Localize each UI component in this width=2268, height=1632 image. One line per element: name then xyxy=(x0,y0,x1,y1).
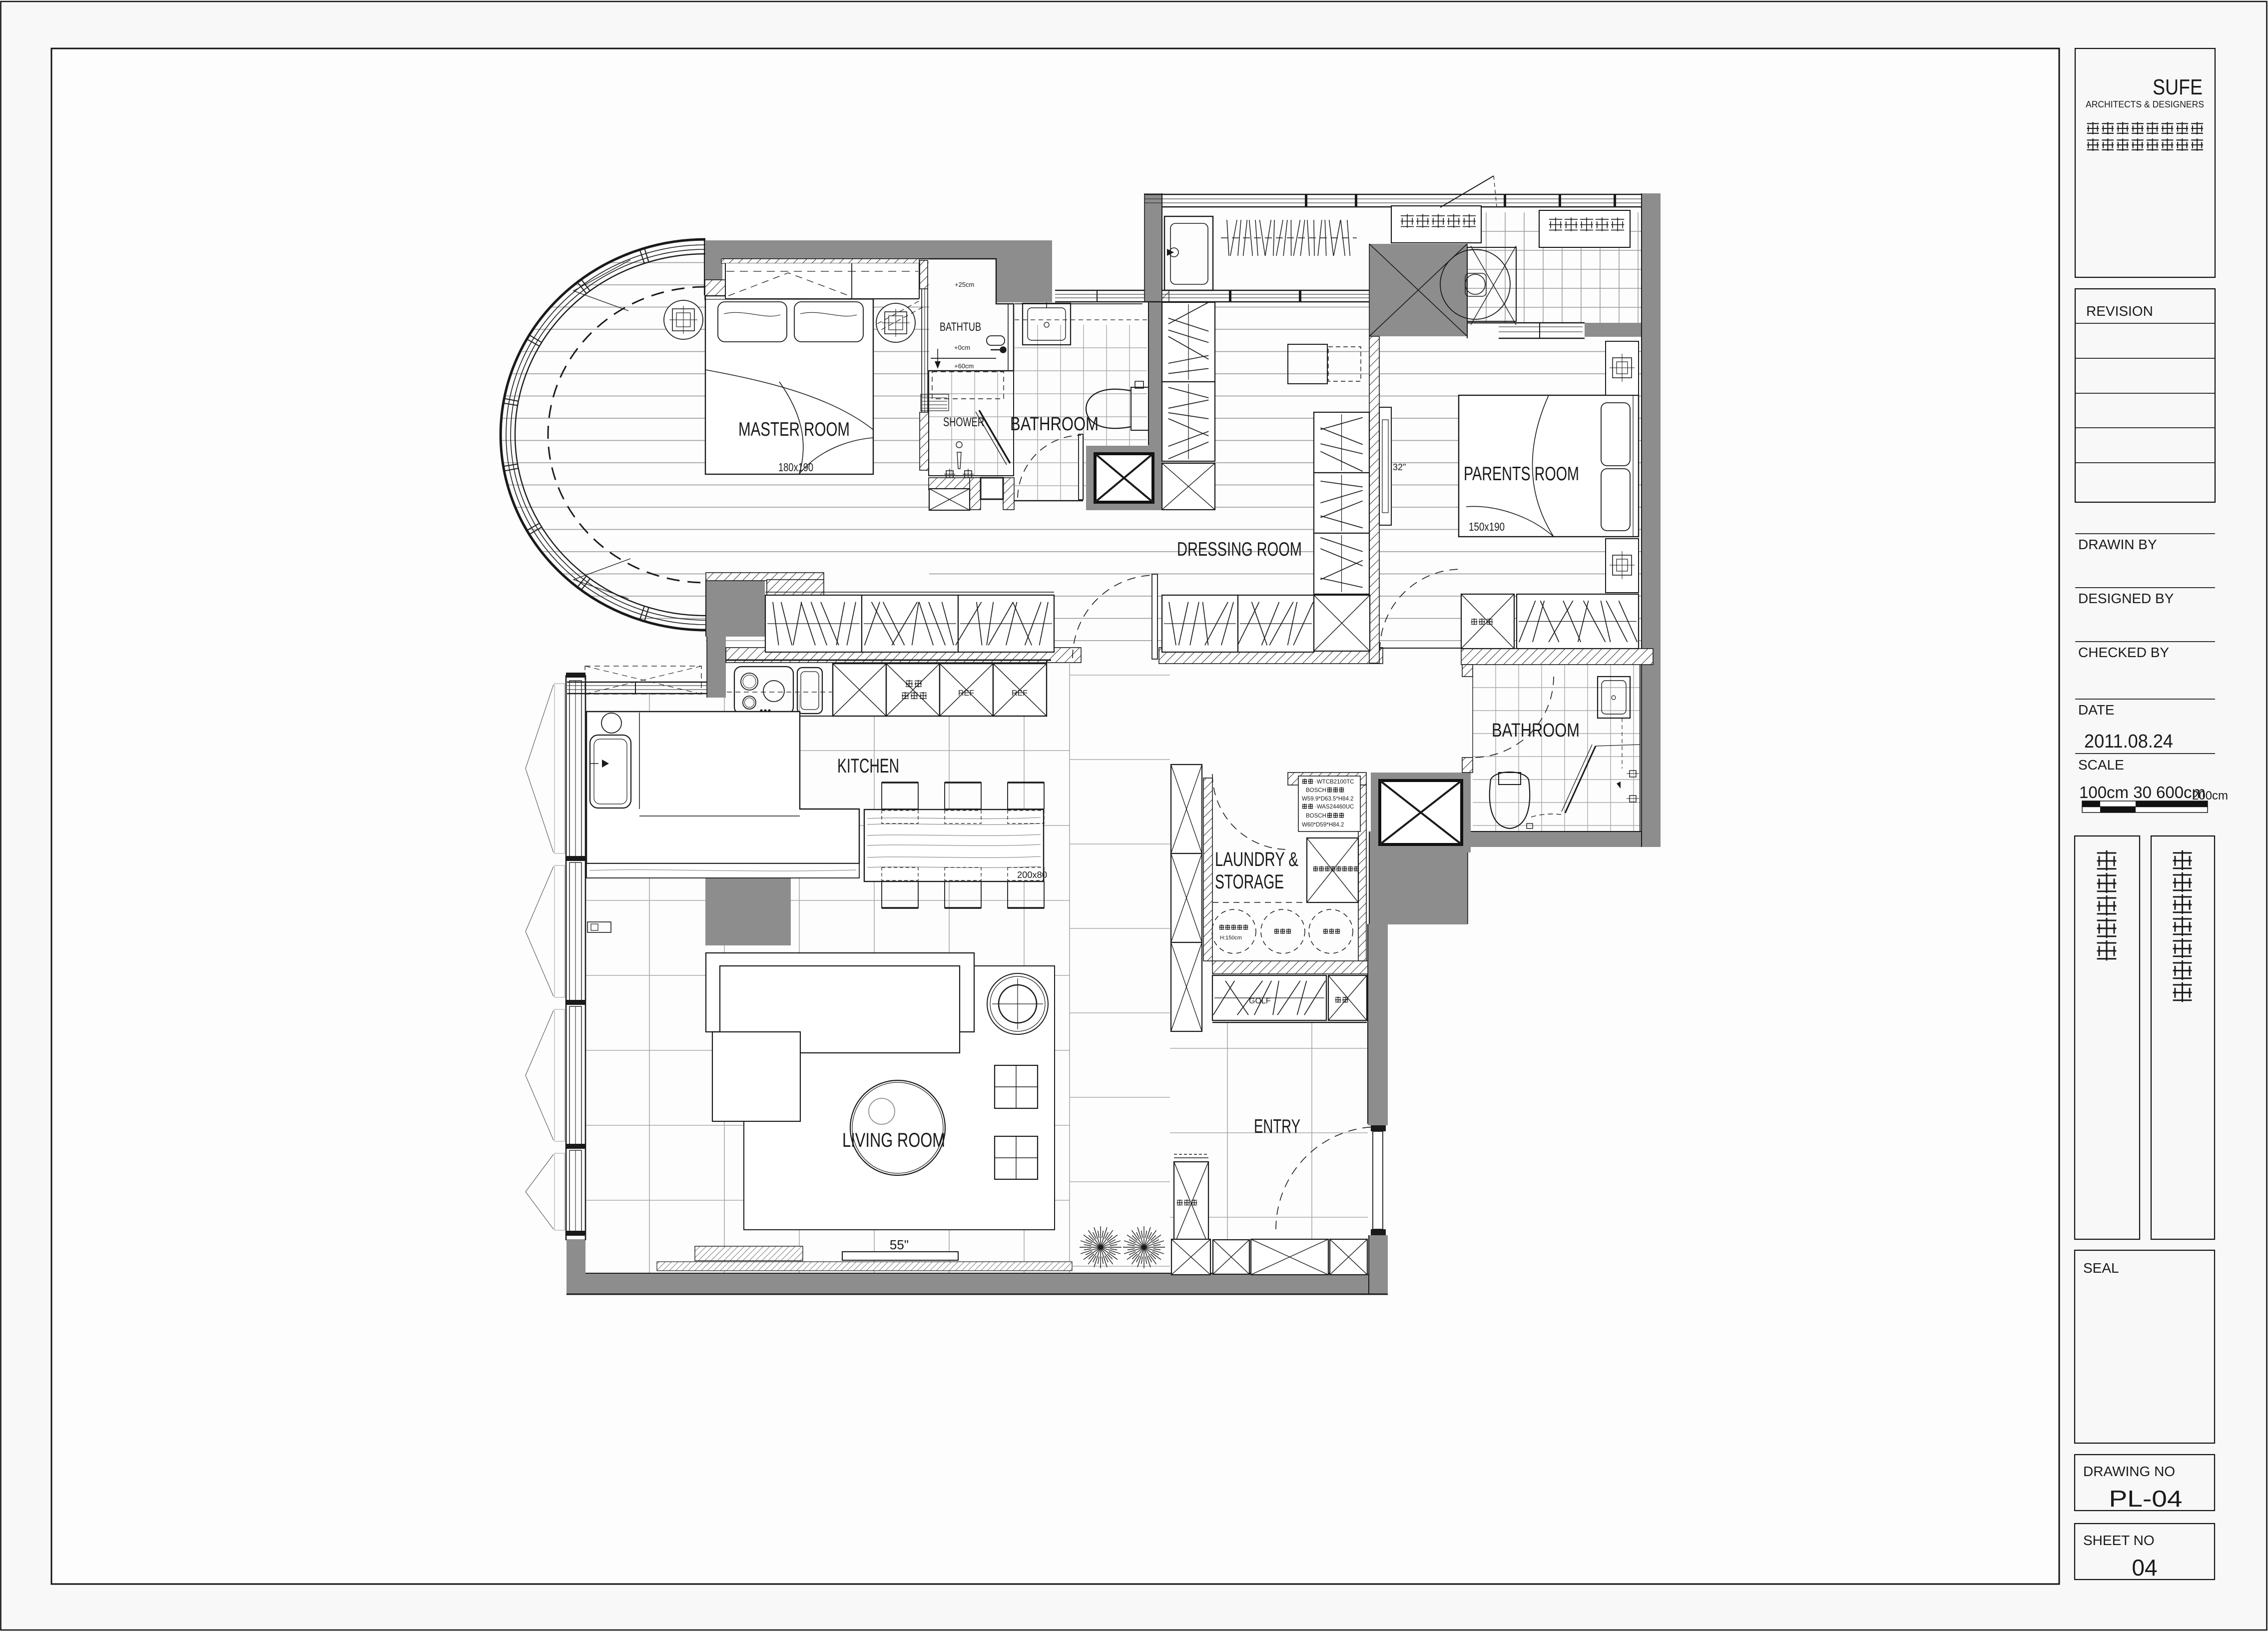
svg-text:PARENTS ROOM: PARENTS ROOM xyxy=(1464,463,1579,485)
svg-text:BATHTUB: BATHTUB xyxy=(940,320,981,334)
svg-text:100cm 30: 100cm 30 xyxy=(2079,783,2152,802)
svg-text:200x80: 200x80 xyxy=(1017,870,1047,880)
svg-text:·WTCB2100TC: ·WTCB2100TC xyxy=(1315,779,1354,785)
svg-text:DATE: DATE xyxy=(2078,702,2115,718)
svg-text:W59.9*D63.5*H84.2: W59.9*D63.5*H84.2 xyxy=(1302,796,1354,802)
svg-text:ENTRY: ENTRY xyxy=(1254,1116,1300,1137)
svg-text:SEAL: SEAL xyxy=(2083,1260,2119,1276)
svg-text:+25cm: +25cm xyxy=(955,281,974,288)
svg-text:REF: REF xyxy=(1012,689,1028,698)
svg-text:REF: REF xyxy=(958,689,974,698)
svg-text:55": 55" xyxy=(890,1237,909,1252)
svg-text:+0cm: +0cm xyxy=(954,344,970,351)
svg-text:SHEET NO: SHEET NO xyxy=(2083,1533,2155,1548)
svg-text:ARCHITECTS & DESIGNERS: ARCHITECTS & DESIGNERS xyxy=(2086,99,2204,109)
svg-text:200cm: 200cm xyxy=(2192,789,2228,803)
svg-text:W60*D59*H84.2: W60*D59*H84.2 xyxy=(1302,822,1344,828)
svg-text:+60cm: +60cm xyxy=(954,362,974,370)
svg-text:KITCHEN: KITCHEN xyxy=(837,755,899,777)
svg-text:DRESSING ROOM: DRESSING ROOM xyxy=(1177,539,1302,560)
svg-text:LAUNDRY &: LAUNDRY & xyxy=(1215,848,1298,870)
svg-text:SHOWER: SHOWER xyxy=(943,415,984,429)
svg-text:REVISION: REVISION xyxy=(2086,303,2153,319)
svg-text:SCALE: SCALE xyxy=(2078,757,2124,773)
svg-text:BOSCH: BOSCH xyxy=(1306,788,1326,794)
svg-text:DESIGNED BY: DESIGNED BY xyxy=(2078,591,2174,606)
svg-text:BATHROOM: BATHROOM xyxy=(1492,720,1580,741)
svg-text:BOSCH: BOSCH xyxy=(1306,813,1326,819)
svg-text:2011.08.24: 2011.08.24 xyxy=(2084,731,2173,752)
svg-text:SUFE: SUFE xyxy=(2153,75,2203,99)
svg-text:LIVING ROOM: LIVING ROOM xyxy=(842,1129,945,1151)
svg-text:32": 32" xyxy=(1393,462,1406,472)
svg-text:DRAWING NO: DRAWING NO xyxy=(2083,1464,2175,1479)
svg-text:150x190: 150x190 xyxy=(1469,520,1505,533)
svg-text:·WAS24460UC: ·WAS24460UC xyxy=(1315,804,1354,810)
svg-text:PL-04: PL-04 xyxy=(2109,1486,2183,1512)
svg-text:04: 04 xyxy=(2132,1555,2157,1581)
svg-text:CHECKED BY: CHECKED BY xyxy=(2078,645,2169,660)
svg-text:180x190: 180x190 xyxy=(778,461,813,474)
svg-text:GOLF: GOLF xyxy=(1249,997,1271,1005)
svg-text:H:150cm: H:150cm xyxy=(1220,935,1242,941)
svg-text:DRAWIN BY: DRAWIN BY xyxy=(2078,537,2157,552)
svg-text:MASTER ROOM: MASTER ROOM xyxy=(738,419,850,440)
svg-text:STORAGE: STORAGE xyxy=(1215,871,1284,893)
svg-text:BATHROOM: BATHROOM xyxy=(1010,414,1099,435)
